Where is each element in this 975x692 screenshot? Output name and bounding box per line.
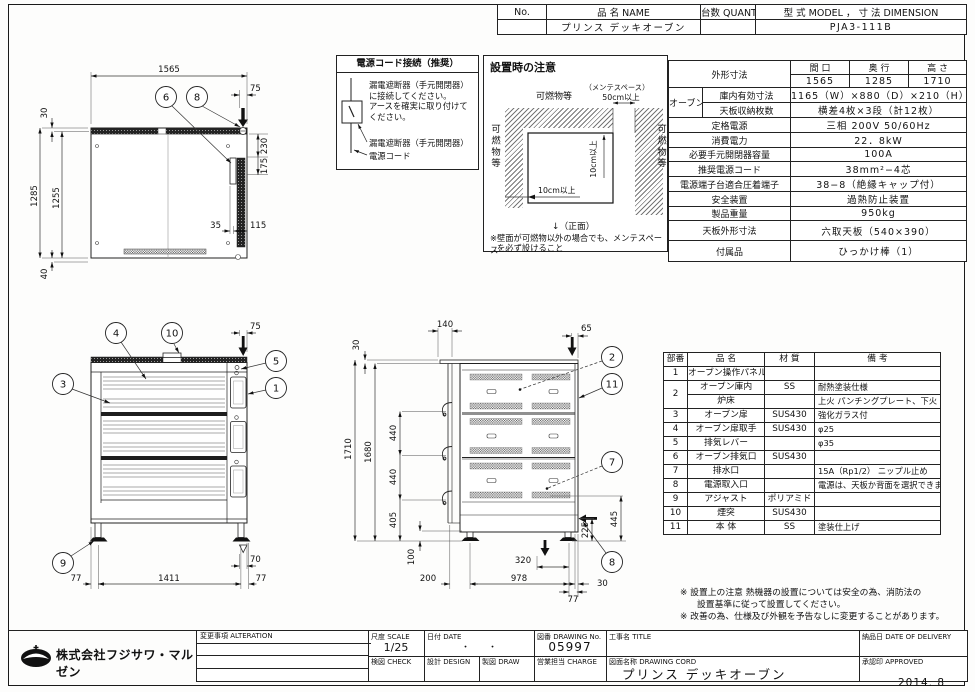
svg-text:5: 5 (273, 357, 279, 368)
dim-label: 405 (389, 512, 399, 528)
drawing-sheet: No. 品 名 NAME 台数 QUANTITY 型 式 MODEL ， 寸 法… (0, 0, 975, 692)
balloon-8-label: 8 (194, 93, 200, 104)
dim-label: 77 (256, 574, 267, 584)
dim-label: 1411 (158, 574, 180, 584)
charge-label: 営業担当 CHARGE (537, 657, 597, 667)
title-block: 変更事項 ALTERATION 尺度 SCALE 1/25 日付 DATE ・ … (196, 630, 968, 682)
balloon-6-label: 6 (163, 93, 169, 104)
front-view: 75 70 77 1411 77 4 (53, 322, 287, 589)
spec-oven-label: オーブン (669, 88, 703, 118)
approved-label: 承認印 APPROVED (862, 657, 923, 667)
spec-inner-dims: 1165（W）×880（D）×210（H）×3 (791, 88, 967, 103)
table-row: 11本 体SS塗装仕上げ (664, 521, 941, 535)
floor-arrow-icon (240, 545, 248, 553)
drawing-name-value: プリンス デッキオーブン (622, 664, 786, 683)
dim-label: 175 (260, 158, 270, 174)
dim-label: 1710 (344, 438, 354, 460)
chimney-duct (237, 158, 245, 247)
header-val-no (498, 20, 547, 35)
table-row: 3オーブン扉SUS430強化ガラス付 (664, 409, 941, 423)
company-logo-icon (18, 643, 54, 669)
spec-table: 外形寸法 間 口 奥 行 高 さ 1565 1285 1710 オーブン 庫内有… (668, 60, 967, 262)
table-row: 8電源取入口電源は、天板か背面を選択できます (664, 479, 941, 493)
svg-text:9: 9 (60, 559, 66, 570)
dim-label: 440 (389, 425, 399, 441)
dim-label: 200 (420, 574, 436, 584)
dim-label: 140 (437, 320, 453, 330)
footnote-3: ※ 改善の為、仕様及び外観を予告なしに変更することがあります。 (680, 609, 944, 622)
header-col-name: 品 名 NAME (547, 5, 701, 20)
exhaust-outlet (230, 158, 236, 184)
rear-vent (124, 249, 206, 254)
svg-text:10: 10 (166, 329, 179, 340)
header-col-no: No. (498, 5, 547, 20)
chimney-cap (163, 353, 181, 358)
date-value: ・ ・ (424, 640, 534, 653)
table-row: 炉床上火 パンチングプレート、下火 SS (664, 395, 941, 409)
dim-label: 445 (610, 511, 620, 527)
delivery-date-label: 納品日 DATE OF DELIVERY (862, 632, 951, 642)
spec-width: 1565 (791, 75, 850, 88)
product-name: プリンス デッキオーブン (547, 20, 701, 35)
svg-text:2: 2 (609, 353, 615, 364)
spec-height: 1710 (909, 75, 967, 88)
table-row: 1オーブン操作パネル (664, 367, 941, 381)
plan-view: 1565 75 30 1285 1255 230 175 (30, 65, 270, 279)
dim-label: 1565 (158, 65, 180, 75)
dim-label: 100 (407, 549, 417, 565)
header-val-qty (701, 20, 756, 35)
top-plate-hatch (91, 128, 158, 134)
dim-label: 1285 (30, 185, 40, 207)
svg-text:8: 8 (609, 558, 615, 569)
spec-tray-capacity: 横差4枚×3段（計12枚） (791, 103, 967, 118)
model-number: PJA3-111B (756, 20, 967, 35)
project-title-label: 工事名 TITLE (609, 632, 651, 642)
adjuster-foot (90, 538, 108, 542)
dim-label: 77 (568, 595, 579, 605)
check-label: 検図 CHECK (371, 657, 411, 667)
top-inlet-arrow-icon (568, 348, 577, 357)
dim-label: 40 (40, 269, 50, 280)
dim-label: 30 (352, 340, 362, 351)
drawing-views: 1565 75 30 1285 1255 230 175 (8, 40, 668, 628)
header-col-model: 型 式 MODEL ， 寸 法 DIMENSION (756, 5, 967, 20)
dim-label: 70 (250, 555, 261, 565)
adjuster-foot (462, 538, 480, 542)
table-row: 9アジャストポリアミド (664, 493, 941, 507)
dim-label: 115 (250, 221, 266, 231)
company-name: 株式会社フジサワ・マルゼン (56, 646, 196, 680)
dim-label: 1680 (364, 441, 374, 463)
header-table: No. 品 名 NAME 台数 QUANTITY 型 式 MODEL ， 寸 法… (497, 4, 967, 35)
table-row: 2オーブン庫内SS耐熱塗装仕様 (664, 381, 941, 395)
spec-depth: 1285 (850, 75, 909, 88)
dim-label: 440 (389, 469, 399, 485)
dim-label: 978 (511, 574, 527, 584)
svg-text:1: 1 (273, 384, 279, 395)
table-row: 4オーブン扉取手SUS430φ25 (664, 423, 941, 437)
control-panels (231, 371, 247, 497)
parts-table: 部番 品 名 材 質 備 考 1オーブン操作パネル 2オーブン庫内SS耐熱塗装仕… (663, 352, 941, 535)
power-inlet-arrow-icon (238, 120, 248, 128)
issue-date: 2014. 8 (898, 677, 945, 689)
dim-label: 1255 (52, 187, 62, 209)
dim-label: 230 (260, 138, 270, 154)
spec-outer-label: 外形寸法 (669, 61, 791, 88)
table-row: 10煙突SUS430 (664, 507, 941, 521)
bottom-inlet-arrow-icon (541, 548, 550, 556)
alteration-header: 変更事項 ALTERATION (197, 631, 371, 644)
table-row: 7排水口15A（Rp1/2） ニップル止め (664, 465, 941, 479)
scale-value: 1/25 (368, 641, 424, 654)
svg-text:3: 3 (60, 380, 66, 391)
side-view: 140 30 65 1710 1680 440 440 405 (344, 320, 626, 605)
table-row: 5排気レバーφ35 (664, 437, 941, 451)
draw-label: 製図 DRAW (482, 657, 520, 667)
adjuster-foot (233, 538, 251, 542)
dim-label: 225 (581, 522, 591, 538)
exhaust-levers (442, 403, 452, 506)
svg-text:11: 11 (606, 380, 619, 391)
dim-label: 75 (250, 322, 261, 332)
svg-text:7: 7 (609, 458, 615, 469)
dim-label: 65 (581, 324, 592, 334)
drawing-no-value: 05997 (534, 640, 606, 654)
dim-label: 30 (40, 108, 50, 119)
dim-label: 75 (250, 84, 261, 94)
header-col-qty: 台数 QUANTITY (701, 5, 756, 20)
svg-text:4: 4 (113, 329, 119, 340)
dim-label: 77 (71, 574, 82, 584)
logo-zone: 株式会社フジサワ・マルゼン (8, 630, 196, 687)
table-row: 6オーブン排気口SUS430 (664, 451, 941, 465)
dim-label: 35 (210, 221, 221, 231)
dim-label: 30 (597, 579, 608, 589)
dim-label: 320 (515, 556, 531, 566)
design-label: 設計 DESIGN (427, 657, 470, 667)
